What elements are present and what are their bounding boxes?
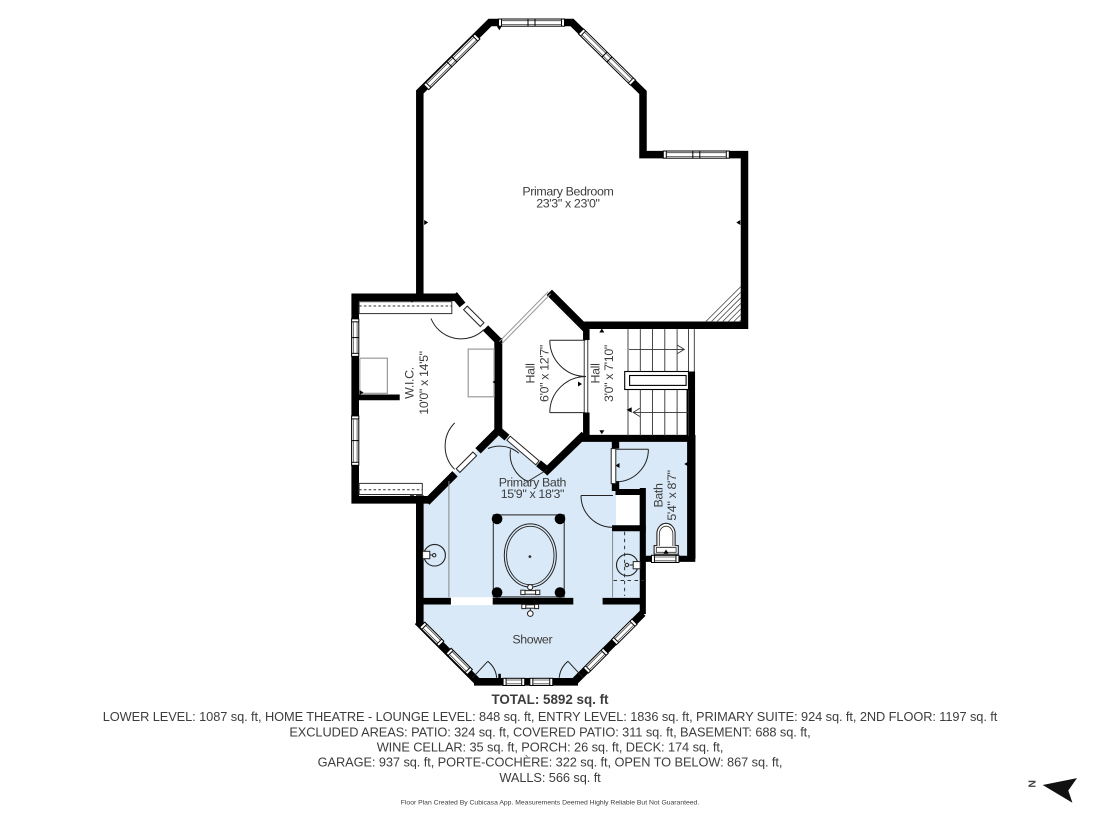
svg-text:WALLS: 566 sq. ft: WALLS: 566 sq. ft bbox=[499, 770, 601, 785]
svg-text:5'4" x 8'7": 5'4" x 8'7" bbox=[665, 470, 679, 520]
svg-text:6'0" x 12'7": 6'0" x 12'7" bbox=[538, 345, 552, 402]
svg-text:Hall: Hall bbox=[524, 364, 538, 384]
svg-text:10'0" x 14'5": 10'0" x 14'5" bbox=[417, 351, 431, 414]
svg-text:WINE CELLAR: 35 sq. ft, PORCH:: WINE CELLAR: 35 sq. ft, PORCH: 26 sq. ft… bbox=[377, 740, 724, 755]
svg-text:TOTAL: 5892 sq. ft: TOTAL: 5892 sq. ft bbox=[491, 692, 609, 707]
svg-text:15'9" x 18'3": 15'9" x 18'3" bbox=[501, 487, 564, 501]
svg-text:Floor Plan Created By Cubicasa: Floor Plan Created By Cubicasa App. Meas… bbox=[401, 800, 700, 807]
svg-text:N: N bbox=[1027, 780, 1039, 788]
svg-text:EXCLUDED AREAS: PATIO: 324 sq.: EXCLUDED AREAS: PATIO: 324 sq. ft, COVER… bbox=[289, 724, 810, 739]
svg-text:23'3" x 23'0": 23'3" x 23'0" bbox=[536, 196, 599, 210]
svg-text:Bath: Bath bbox=[652, 483, 666, 508]
svg-text:Shower: Shower bbox=[512, 632, 552, 646]
svg-text:GARAGE: 937 sq. ft, PORTE-COCH: GARAGE: 937 sq. ft, PORTE-COCHÈRE: 322 s… bbox=[318, 755, 783, 770]
svg-text:W.I.C.: W.I.C. bbox=[403, 367, 417, 399]
svg-text:Hall: Hall bbox=[589, 364, 603, 384]
svg-text:LOWER LEVEL: 1087 sq. ft, HOME: LOWER LEVEL: 1087 sq. ft, HOME THEATRE -… bbox=[103, 709, 998, 724]
svg-text:3'0" x 7'10": 3'0" x 7'10" bbox=[602, 345, 616, 402]
